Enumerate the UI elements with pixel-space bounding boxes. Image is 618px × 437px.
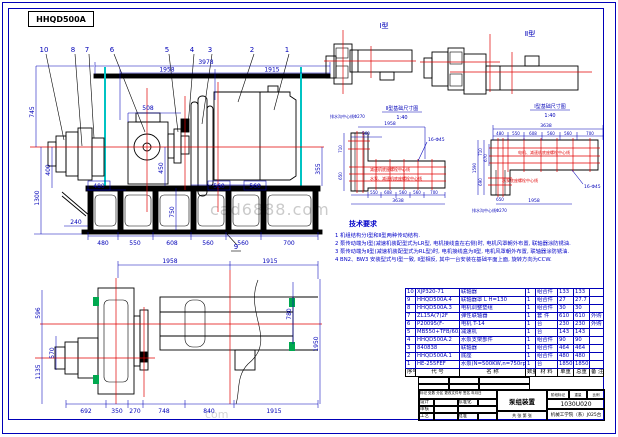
foundation-plan-type2: Ⅱ型基础尺寸图 1:40 排水沟中心线Φ270 195 xyxy=(330,103,470,218)
dim-label: 3638 xyxy=(540,123,552,129)
view2-centerlines xyxy=(420,34,592,94)
dim-label: 700 xyxy=(430,190,438,195)
dim-label: 750 xyxy=(169,206,176,218)
dim-label: 550 xyxy=(370,190,378,195)
dim-label: 1300 xyxy=(34,190,41,205)
dim-label: 700 xyxy=(283,240,295,247)
dim-label: 270 xyxy=(129,408,141,415)
sheet-info: 共 张 第 张 xyxy=(496,410,548,421)
table-row: 5MB550+TFB/60.2减速机1台143143 xyxy=(406,329,604,337)
tech-req-line: 2 泵传动端为Ⅰ型(减速机装配型式为LR型, 电机接线盒在右侧)时, 电机风罩朝… xyxy=(335,240,605,248)
tech-req-title: 技术要求 xyxy=(349,219,605,229)
process-signature-cell xyxy=(433,412,459,421)
dim-label: 3978 xyxy=(198,59,213,66)
view-label: Ⅱ型 xyxy=(525,29,535,38)
part-callout: 10 xyxy=(40,46,49,54)
dim-label: 670 xyxy=(483,154,488,162)
tech-req-line: 4 BN2、BW3 安装型式与Ⅰ型一致, Ⅱ型相反, 其中一台安装在基础平面上面… xyxy=(335,256,605,264)
dim-label: 690 xyxy=(478,178,483,186)
part-callout: 9 xyxy=(234,243,238,251)
dim-label: 560 xyxy=(547,131,555,136)
table-row: 10XJP320-71联轴器1组合件133133 xyxy=(406,289,604,297)
bolt-centerline-note: 电机、减速机底座螺栓中心线 xyxy=(518,149,570,155)
dim-label: 3638 xyxy=(392,198,404,204)
table-row: 6P20095(F-电机 T-141台230230外购 xyxy=(406,321,604,329)
machine-outline xyxy=(48,67,330,234)
mount-pads xyxy=(93,297,295,384)
dim-label: 840 xyxy=(203,408,215,415)
table-row: 9HHQD500A.4联轴器罩 L H=1301组合件2727.7 xyxy=(406,297,604,305)
bom-and-titleblock: 10XJP320-71联轴器1组合件1331339HHQD500A.4联轴器罩 … xyxy=(405,288,603,419)
part-callout: 8 xyxy=(71,46,75,54)
centerlines xyxy=(30,82,324,212)
dim-label: 608 xyxy=(529,131,537,136)
dim-label: 350 xyxy=(111,408,123,415)
dim-label: 508 xyxy=(142,105,154,112)
bolt-centerline-note: 减速机底座螺栓中心线 xyxy=(370,166,410,172)
dim-label: 560 xyxy=(399,190,407,195)
dim-label: 1958 xyxy=(384,121,396,127)
dim-label: 400 xyxy=(45,164,52,176)
dim-label: 748 xyxy=(158,408,170,415)
dim-label: 596 xyxy=(35,307,42,319)
plan-view: 1958 1915 780 1950 596 570 1135 692 350 … xyxy=(30,252,330,420)
view-title: Ⅰ型基础尺寸图 xyxy=(534,103,565,110)
table-row: 4HHQD500A.2水泵支架部件1组合件9090 xyxy=(406,337,604,345)
technical-requirements: 技术要求 1 机组结构分Ⅰ型和Ⅱ型两种传动结构. 2 泵传动端为Ⅰ型(减速机装配… xyxy=(335,219,605,264)
dim-label: 240 xyxy=(70,219,82,226)
dim-label: 560 xyxy=(413,190,421,195)
company-name: 机械工学院（系）J025台 xyxy=(546,408,605,421)
foundation-plan-type1: Ⅰ型基础尺寸图 1:40 3638 xyxy=(472,100,618,220)
dim-label: 560 xyxy=(202,240,214,247)
dim-label: 608 xyxy=(166,240,178,247)
approve-label: 批准 xyxy=(457,412,479,421)
dim-label: 650 xyxy=(496,197,504,202)
model-number: HHQD500A xyxy=(36,15,86,24)
dim-label: 745 xyxy=(29,106,36,118)
dim-label: 700 xyxy=(586,131,594,136)
dim-label: 1135 xyxy=(35,364,42,379)
foundation1-dimlines xyxy=(478,125,603,204)
view-scale: 1:40 xyxy=(544,113,555,119)
dim-label: 480 xyxy=(496,131,504,136)
drain-note: 排水沟中心线Φ270 xyxy=(330,113,365,119)
bolt-centerline-note: 水泵底座螺栓中心线 xyxy=(502,177,538,183)
view-label: Ⅰ型 xyxy=(379,21,388,30)
dim-label: 560 xyxy=(237,240,249,247)
model-number-box: HHQD500A xyxy=(28,11,94,27)
dim-label: 550 xyxy=(512,131,520,136)
bolt-centerline-note: 水泵、减速机底座螺栓中心线 xyxy=(370,175,422,181)
dim-label: 692 xyxy=(80,408,92,415)
detail-view-type1: Ⅰ型 xyxy=(322,18,418,106)
plan-dimension-lines xyxy=(42,261,320,408)
main-elevation-view: 3978 1958 1915 508 745 400 1300 355 450 … xyxy=(28,40,340,255)
part-callout: 7 xyxy=(85,46,89,54)
dim-label: 608 xyxy=(384,190,392,195)
part-callout: 3 xyxy=(208,46,212,54)
bolt-note: 16-Φ45 xyxy=(428,137,445,143)
dim-label: 780 xyxy=(286,308,293,320)
dim-label: 650 xyxy=(338,172,343,180)
table-header-row: 序号代 号名 称数量材 料单重总重备 注 xyxy=(406,369,604,377)
dim-label: 480 xyxy=(97,240,109,247)
dim-label: 1950 xyxy=(313,336,320,351)
bolt-note: 16-Φ45 xyxy=(584,184,601,190)
part-callout: 1 xyxy=(285,46,289,54)
approve-signature-cell xyxy=(477,412,498,421)
dim-label: 570 xyxy=(49,347,56,359)
tech-req-line: 1 机组结构分Ⅰ型和Ⅱ型两种传动结构. xyxy=(335,232,605,240)
table-row: 8HHQD500A.3电机调整垫组1组合件3030 xyxy=(406,305,604,313)
dim-label: 480 xyxy=(93,183,105,190)
view-title: Ⅱ型基础尺寸图 xyxy=(386,105,418,112)
bom-rows: 10XJP320-71联轴器1组合件1331339HHQD500A.4联轴器罩 … xyxy=(406,289,604,377)
dim-label: 560 xyxy=(213,183,225,190)
part-callout: 5 xyxy=(165,46,169,54)
dim-label: 1958 xyxy=(159,67,174,74)
table-row: 3840838联轴器1组合件464464 xyxy=(406,345,604,353)
dim-label: 450 xyxy=(158,162,165,174)
view1-outline xyxy=(326,44,412,84)
dim-label: 1590 xyxy=(472,162,477,173)
dim-label: 710 xyxy=(338,145,343,153)
bom-table: 10XJP320-71联轴器1组合件1331339HHQD500A.4联轴器罩 … xyxy=(405,288,604,377)
dim-label: 1915 xyxy=(266,408,281,415)
table-row: 1HE-255FEF水泵(N=500KW,n=750rpm)1台18501850 xyxy=(406,361,604,369)
dim-label: 560 xyxy=(564,131,572,136)
dim-label: 550 xyxy=(129,240,141,247)
cad-drawing-sheet: cad6888.com com HHQD500A xyxy=(0,0,618,437)
table-row: 7ZL15A(7)2F弹性联轴器1套 件610610外购 xyxy=(406,313,604,321)
drawing-title: 泵组装置 xyxy=(496,390,548,412)
view-scale: 1:40 xyxy=(396,115,407,121)
tech-req-line: 3 泵传动端为Ⅱ型(减速机装配型式为RL型)时, 电机接线盒为Ⅱ型, 电机风罩朝… xyxy=(335,248,605,256)
dim-label: 1958 xyxy=(162,258,177,265)
dim-label: 1958 xyxy=(528,198,540,204)
callout-leaders xyxy=(46,54,289,245)
title-block: 标记 处数 分区 更改文件号 签名 年月日 设计 标准化 审核 工艺 批准 泵组… xyxy=(418,389,605,421)
part-callout: 2 xyxy=(250,46,254,54)
dim-label: 560 xyxy=(362,131,370,136)
dim-label: 1915 xyxy=(262,258,277,265)
plan-centerlines xyxy=(35,270,322,404)
view2-outline xyxy=(424,48,578,94)
drain-note: 排水沟中心线Φ270 xyxy=(472,207,507,213)
table-row: 2HHQD500A.1底座1组合件480480 xyxy=(406,353,604,361)
dim-label: 355 xyxy=(315,163,322,175)
part-callout: 6 xyxy=(110,46,115,54)
dim-label: 1915 xyxy=(264,67,279,74)
dim-label: 560 xyxy=(249,183,261,190)
part-callout: 4 xyxy=(190,46,195,54)
